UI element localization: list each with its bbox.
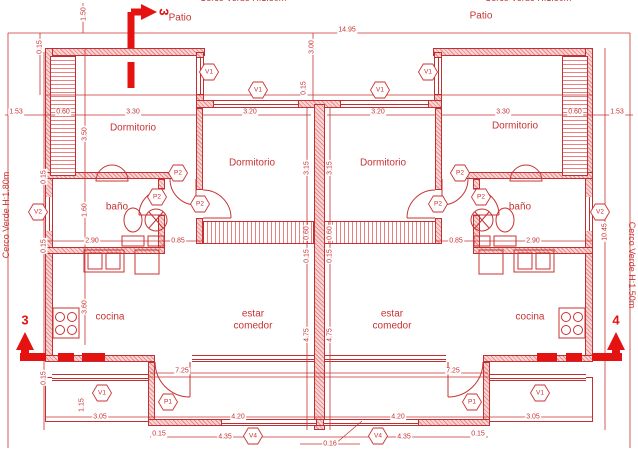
dimension-label: 0.15 xyxy=(41,370,48,386)
fence-label: Cerco Verde H:1.80m xyxy=(200,0,287,3)
dimension-label: 3.30 xyxy=(125,109,141,116)
dimension-label: 0.15 xyxy=(41,169,48,185)
dimension-label: 3.00 xyxy=(309,39,316,55)
dimension-label: 4.35 xyxy=(396,434,412,441)
dimension-label: 4.20 xyxy=(390,414,406,421)
room-label: Dormitorio xyxy=(348,157,418,169)
dimension-label: 3.20 xyxy=(370,109,386,116)
marker-p2: P2 xyxy=(471,189,491,206)
dimension-label: 3.60 xyxy=(82,299,89,315)
stove-burner-icon xyxy=(574,313,583,322)
marker-p2: P2 xyxy=(190,196,210,213)
dimension-label: 4.75 xyxy=(327,327,334,343)
room-label: Dormitorio xyxy=(217,157,287,169)
dimension-label: 0.15 xyxy=(470,431,486,438)
dimension-label: 1.50 xyxy=(81,6,88,22)
dimension-label: 1.15 xyxy=(79,397,86,413)
dimension-label: 7.25 xyxy=(445,368,461,375)
marker-p2: P2 xyxy=(147,189,167,206)
marker-v1: V1 xyxy=(248,82,268,99)
fence-label: Cerco Verde H:1.80m xyxy=(1,172,11,259)
stove-burner-icon xyxy=(68,326,77,335)
dimension-label: 4.20 xyxy=(230,414,246,421)
stove-burner-icon xyxy=(56,326,65,335)
room-label: baño xyxy=(97,201,137,213)
dimension-label: 3.15 xyxy=(304,160,311,176)
marker-p1: P1 xyxy=(158,394,178,411)
section-label-3-bottom: 3 xyxy=(21,313,28,328)
section-3-arrowhead xyxy=(16,332,34,350)
marker-p1: P1 xyxy=(462,394,482,411)
patio-label: Patio xyxy=(461,10,501,22)
marker-v4: V4 xyxy=(368,428,388,445)
laundry-tub-icon xyxy=(149,212,163,228)
marker-p2: P2 xyxy=(428,196,448,213)
dimension-label: 1.53 xyxy=(609,109,625,116)
fence-label: Cerco Verde H:1.50m xyxy=(627,222,637,309)
floor-plan-canvas: 3 3 4 DormitorioDormitorioDormitorioDorm… xyxy=(0,0,638,450)
dimension-label: 3.15 xyxy=(327,160,334,176)
dimension-label: 14.95 xyxy=(337,27,357,34)
section-label-4: 4 xyxy=(612,313,619,328)
marker-v1: V1 xyxy=(370,82,390,99)
sink-icon xyxy=(96,165,128,181)
stove-burner-icon xyxy=(56,313,65,322)
dimension-label: 4.35 xyxy=(217,434,233,441)
dimension-label: 3.20 xyxy=(242,109,258,116)
stove-burner-icon xyxy=(68,313,77,322)
dimension-label: 0.85 xyxy=(170,238,186,245)
room-label: Dormitorio xyxy=(480,120,550,132)
kitchen-sink-icon xyxy=(536,253,550,269)
kitchen-sink-icon xyxy=(88,253,102,269)
dimension-label: 0.16 xyxy=(322,441,338,448)
dimension-label: 0.15 xyxy=(151,431,167,438)
dimension-label: 10.45 xyxy=(602,222,609,242)
section-3-line xyxy=(131,12,141,48)
dimension-label: 0.15 xyxy=(301,80,308,96)
dimension-label: 0.60 xyxy=(55,109,71,116)
dimension-label: 7.25 xyxy=(174,368,190,375)
marker-p2: P2 xyxy=(168,165,188,182)
marker-v4: V4 xyxy=(243,428,263,445)
marker-v1: V1 xyxy=(530,385,550,402)
kitchen-sink-icon xyxy=(518,253,532,269)
dimension-label: 2.90 xyxy=(84,238,100,245)
room-label: Dormitorio xyxy=(98,122,168,134)
kitchen-sink-icon xyxy=(106,253,120,269)
fridge-icon xyxy=(135,250,159,274)
stove-burner-icon xyxy=(562,326,571,335)
dimension-label: 3.05 xyxy=(92,414,108,421)
dimension-label: 1.53 xyxy=(8,109,24,116)
dimension-label: 0.60 xyxy=(304,225,311,241)
marker-v2: V2 xyxy=(28,204,48,221)
stove-burner-icon xyxy=(574,326,583,335)
plan-linework xyxy=(0,0,638,450)
fence-label: Cerco Verde H:1.80m xyxy=(485,0,572,3)
section-4-arrowhead xyxy=(607,332,625,350)
section-3-line xyxy=(20,350,46,357)
dimension-label: 0.15 xyxy=(37,39,44,55)
room-label: cocina xyxy=(505,311,555,323)
marker-p2: P2 xyxy=(450,165,470,182)
stove-burner-icon xyxy=(562,313,571,322)
dimension-label: 0.15 xyxy=(41,238,48,254)
dimension-label: 3.50 xyxy=(82,126,89,142)
room-label: estar comedor xyxy=(225,309,281,332)
laundry-tub-icon xyxy=(475,212,489,228)
dimension-label: 0.60 xyxy=(567,109,583,116)
marker-v1: V1 xyxy=(418,64,438,81)
room-label: estar comedor xyxy=(364,309,420,332)
section-3-arrowhead xyxy=(141,4,157,20)
dimension-label: 3.05 xyxy=(525,414,541,421)
room-label: cocina xyxy=(85,311,135,323)
marker-v1: V1 xyxy=(199,64,219,81)
section-4-line xyxy=(592,350,622,357)
dimension-label: 0.15 xyxy=(327,248,334,264)
dimension-label: 1.60 xyxy=(82,202,89,218)
dimension-label: 3.30 xyxy=(495,109,511,116)
marker-v1: V1 xyxy=(92,385,112,402)
dimension-label: 2.90 xyxy=(525,238,541,245)
dimension-lines xyxy=(5,3,633,448)
dimension-label: 4.75 xyxy=(304,327,311,343)
dimension-label: 0.15 xyxy=(304,248,311,264)
sink-icon xyxy=(510,165,542,181)
room-label: baño xyxy=(500,201,540,213)
patio-label: Patio xyxy=(160,12,200,24)
dimension-label: 0.60 xyxy=(327,225,334,241)
dimension-label: 0.85 xyxy=(448,238,464,245)
marker-v2: V2 xyxy=(590,204,610,221)
fridge-icon xyxy=(479,250,503,274)
